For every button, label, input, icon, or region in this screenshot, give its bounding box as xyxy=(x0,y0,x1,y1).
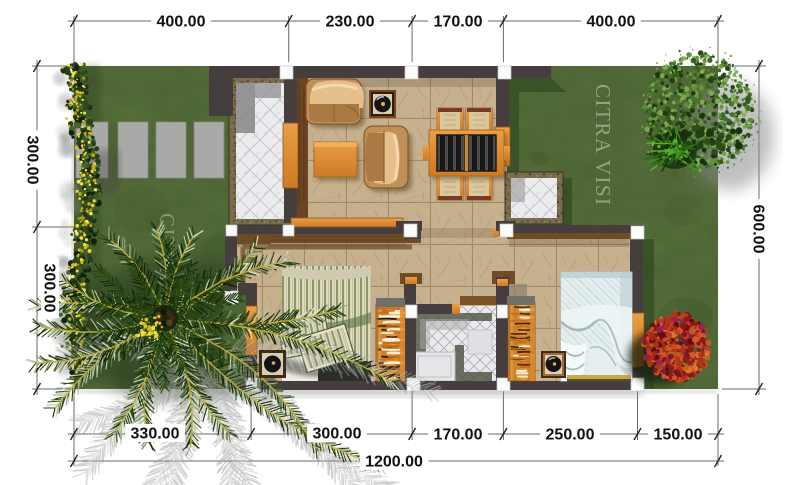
svg-text:600.00: 600.00 xyxy=(750,205,767,254)
svg-text:170.00: 170.00 xyxy=(434,14,483,31)
svg-text:330.00: 330.00 xyxy=(131,426,180,443)
svg-text:300.00: 300.00 xyxy=(24,136,41,185)
svg-text:1200.00: 1200.00 xyxy=(365,454,423,471)
svg-text:170.00: 170.00 xyxy=(434,427,483,444)
svg-text:230.00: 230.00 xyxy=(326,14,375,31)
svg-text:400.00: 400.00 xyxy=(587,14,636,31)
svg-text:400.00: 400.00 xyxy=(157,14,206,31)
svg-text:CITRA VISI: CITRA VISI xyxy=(591,84,615,207)
svg-text:150.00: 150.00 xyxy=(654,427,703,444)
svg-text:300.00: 300.00 xyxy=(313,426,362,443)
svg-text:300.00: 300.00 xyxy=(41,264,58,313)
svg-text:250.00: 250.00 xyxy=(546,427,595,444)
